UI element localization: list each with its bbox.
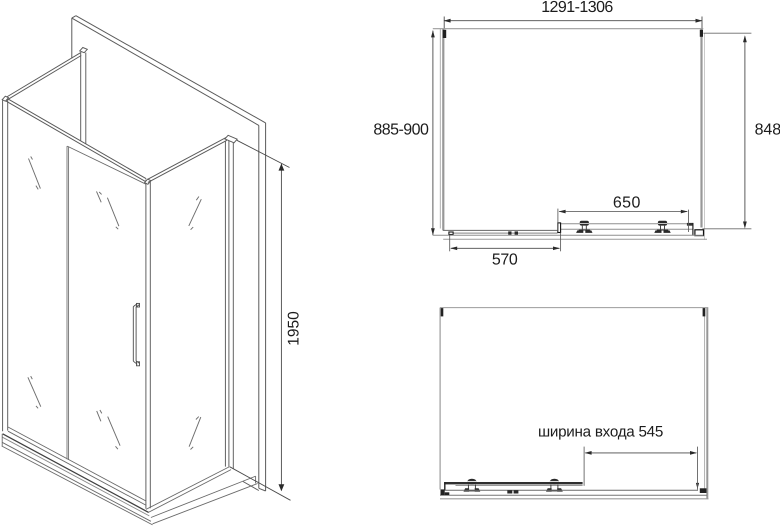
svg-text:ширина входа 545: ширина входа 545	[538, 423, 663, 440]
svg-text:650: 650	[613, 195, 641, 212]
svg-text:1950: 1950	[285, 311, 302, 346]
svg-text:848: 848	[755, 122, 780, 139]
svg-text:885-900: 885-900	[373, 121, 429, 138]
svg-text:570: 570	[492, 251, 518, 268]
svg-text:1291-1306: 1291-1306	[541, 0, 613, 16]
